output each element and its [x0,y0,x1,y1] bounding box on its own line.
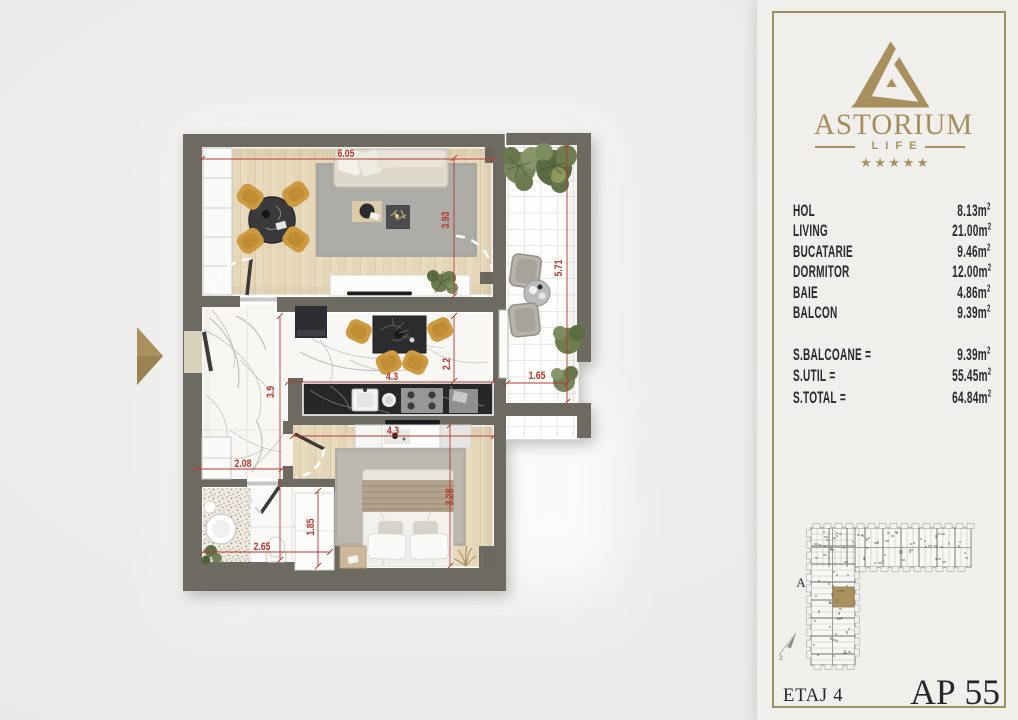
svg-text:4.3: 4.3 [387,425,399,437]
svg-text:2.2: 2.2 [441,358,453,370]
svg-text:1.85: 1.85 [305,519,317,536]
svg-text:3.9: 3.9 [265,386,277,398]
svg-text:2.65: 2.65 [254,541,271,553]
svg-text:3.93: 3.93 [440,212,452,229]
svg-text:A: A [796,575,806,590]
svg-text:3.28: 3.28 [444,489,456,506]
svg-text:4.3: 4.3 [386,371,398,383]
svg-text:z: z [779,652,783,662]
svg-text:5.71: 5.71 [553,260,565,277]
svg-text:6.05: 6.05 [338,148,355,160]
svg-text:2.08: 2.08 [235,458,252,470]
svg-text:1.65: 1.65 [529,370,546,382]
